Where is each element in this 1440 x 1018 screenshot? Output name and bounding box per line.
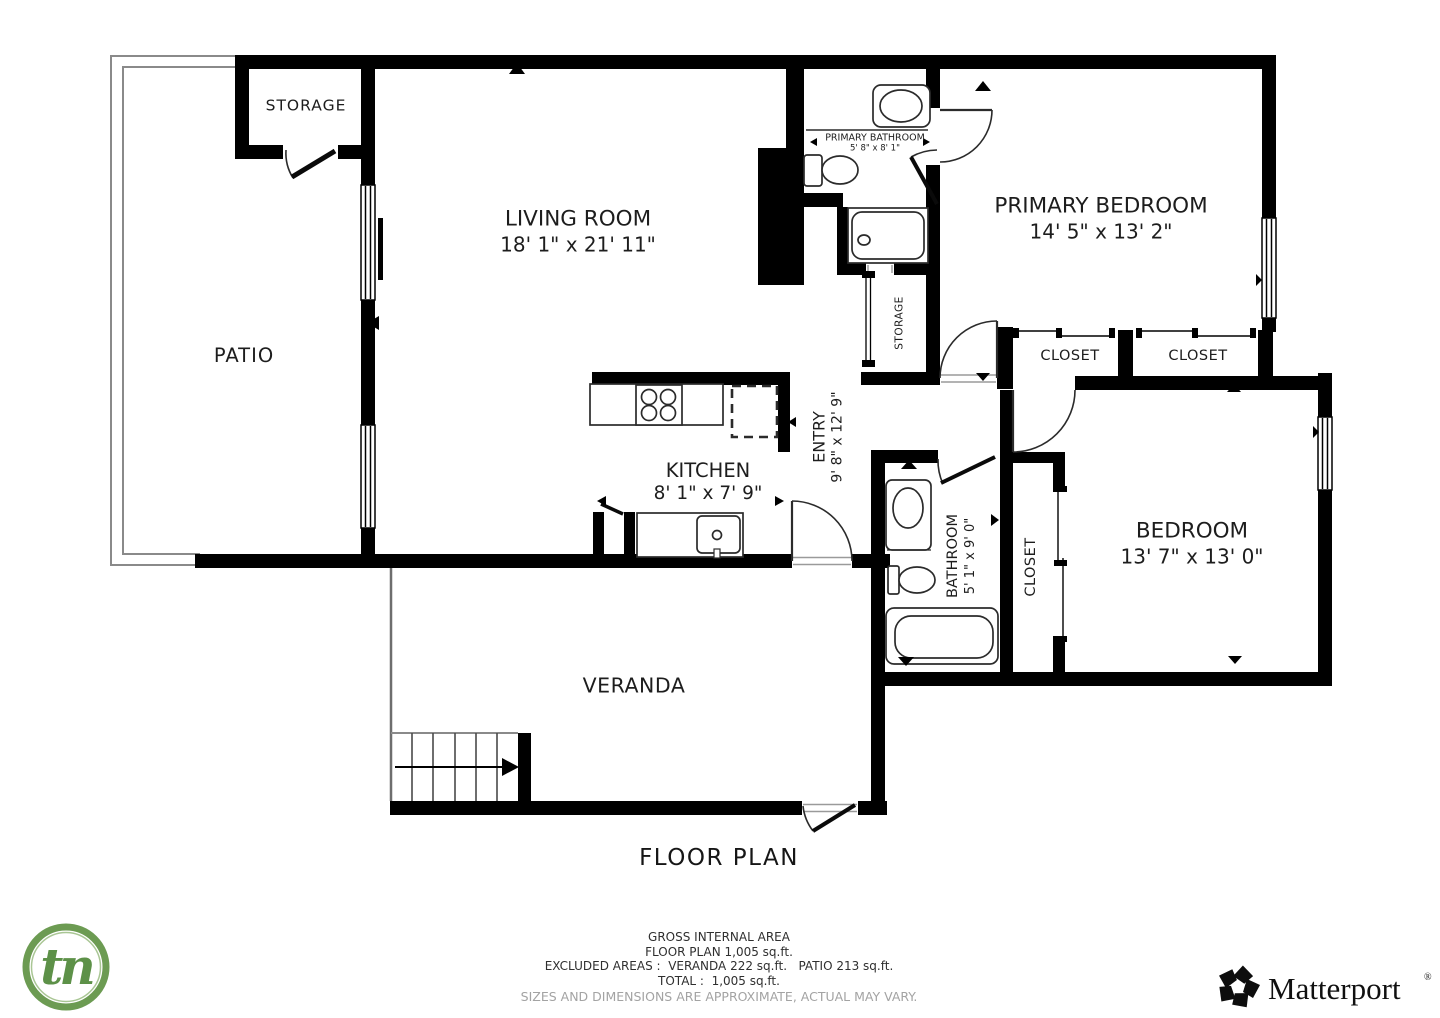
disclaimer-line: SIZES AND DIMENSIONS ARE APPROXIMATE, AC… (369, 990, 1069, 1005)
patio-outline (111, 56, 235, 565)
room-label-bedroom: BEDROOM 13' 7" x 13' 0" (1120, 519, 1263, 570)
primary-toilet-icon (804, 155, 858, 186)
room-label-entry: ENTRY 9' 8" x 12' 9" (810, 391, 847, 482)
total-area-line: TOTAL : 1,005 sq.ft. (369, 974, 1069, 989)
page-title: FLOOR PLAN (639, 845, 799, 871)
svg-text:®: ® (1424, 972, 1432, 983)
room-label-bathroom: BATHROOM 5' 1" x 9' 0" (945, 514, 979, 598)
room-label-storage-mid: STORAGE (894, 296, 907, 349)
fridge-outline (732, 386, 777, 437)
tn-logo: tn (26, 927, 106, 1007)
room-label-closet-primary-left: CLOSET (1040, 348, 1099, 366)
toilet-icon (888, 566, 935, 594)
room-label-closet-bedroom: CLOSET (1023, 537, 1041, 596)
room-label-veranda: VERANDA (583, 674, 686, 699)
area-summary: GROSS INTERNAL AREA FLOOR PLAN 1,005 sq.… (369, 930, 1069, 1005)
closet-sliding-doors (1013, 328, 1256, 642)
room-label-kitchen: KITCHEN 8' 1" x 7' 9" (654, 459, 763, 505)
room-label-patio: PATIO (214, 344, 274, 368)
excluded-areas-line: EXCLUDED AREAS : VERANDA 222 sq.ft. PATI… (369, 959, 1069, 974)
matterport-logo: Matterport ® (1214, 964, 1432, 1012)
room-label-closet-primary-right: CLOSET (1168, 348, 1227, 366)
bathtub-icon (886, 608, 998, 664)
svg-text:Matterport: Matterport (1268, 971, 1401, 1006)
svg-text:tn: tn (40, 937, 93, 996)
stairs-icon (391, 568, 519, 801)
stove-icon (590, 384, 723, 425)
primary-sink-icon (806, 85, 930, 130)
room-label-living-room: LIVING ROOM 18' 1" x 21' 11" (500, 207, 656, 258)
room-label-primary-bedroom: PRIMARY BEDROOM 14' 5" x 13' 2" (994, 194, 1207, 245)
room-label-primary-bathroom: PRIMARY BATHROOM 5' 8" x 8' 1" (825, 134, 925, 155)
room-label-storage-top: STORAGE (266, 97, 347, 116)
floor-plan-page: tn Matterport ® STORAGE LIVING ROOM 18' … (0, 0, 1440, 1018)
storage-louver (862, 271, 875, 367)
bathroom-sink-icon (886, 480, 931, 550)
bedroom-window (1318, 417, 1332, 490)
floor-plan-area-line: FLOOR PLAN 1,005 sq.ft. (369, 945, 1069, 960)
primary-bedroom-window (1262, 218, 1276, 318)
gross-internal-area-line: GROSS INTERNAL AREA (369, 930, 1069, 945)
matterport-icon (1214, 964, 1260, 1012)
kitchen-sink-icon (637, 513, 743, 558)
shower-icon (848, 208, 928, 263)
